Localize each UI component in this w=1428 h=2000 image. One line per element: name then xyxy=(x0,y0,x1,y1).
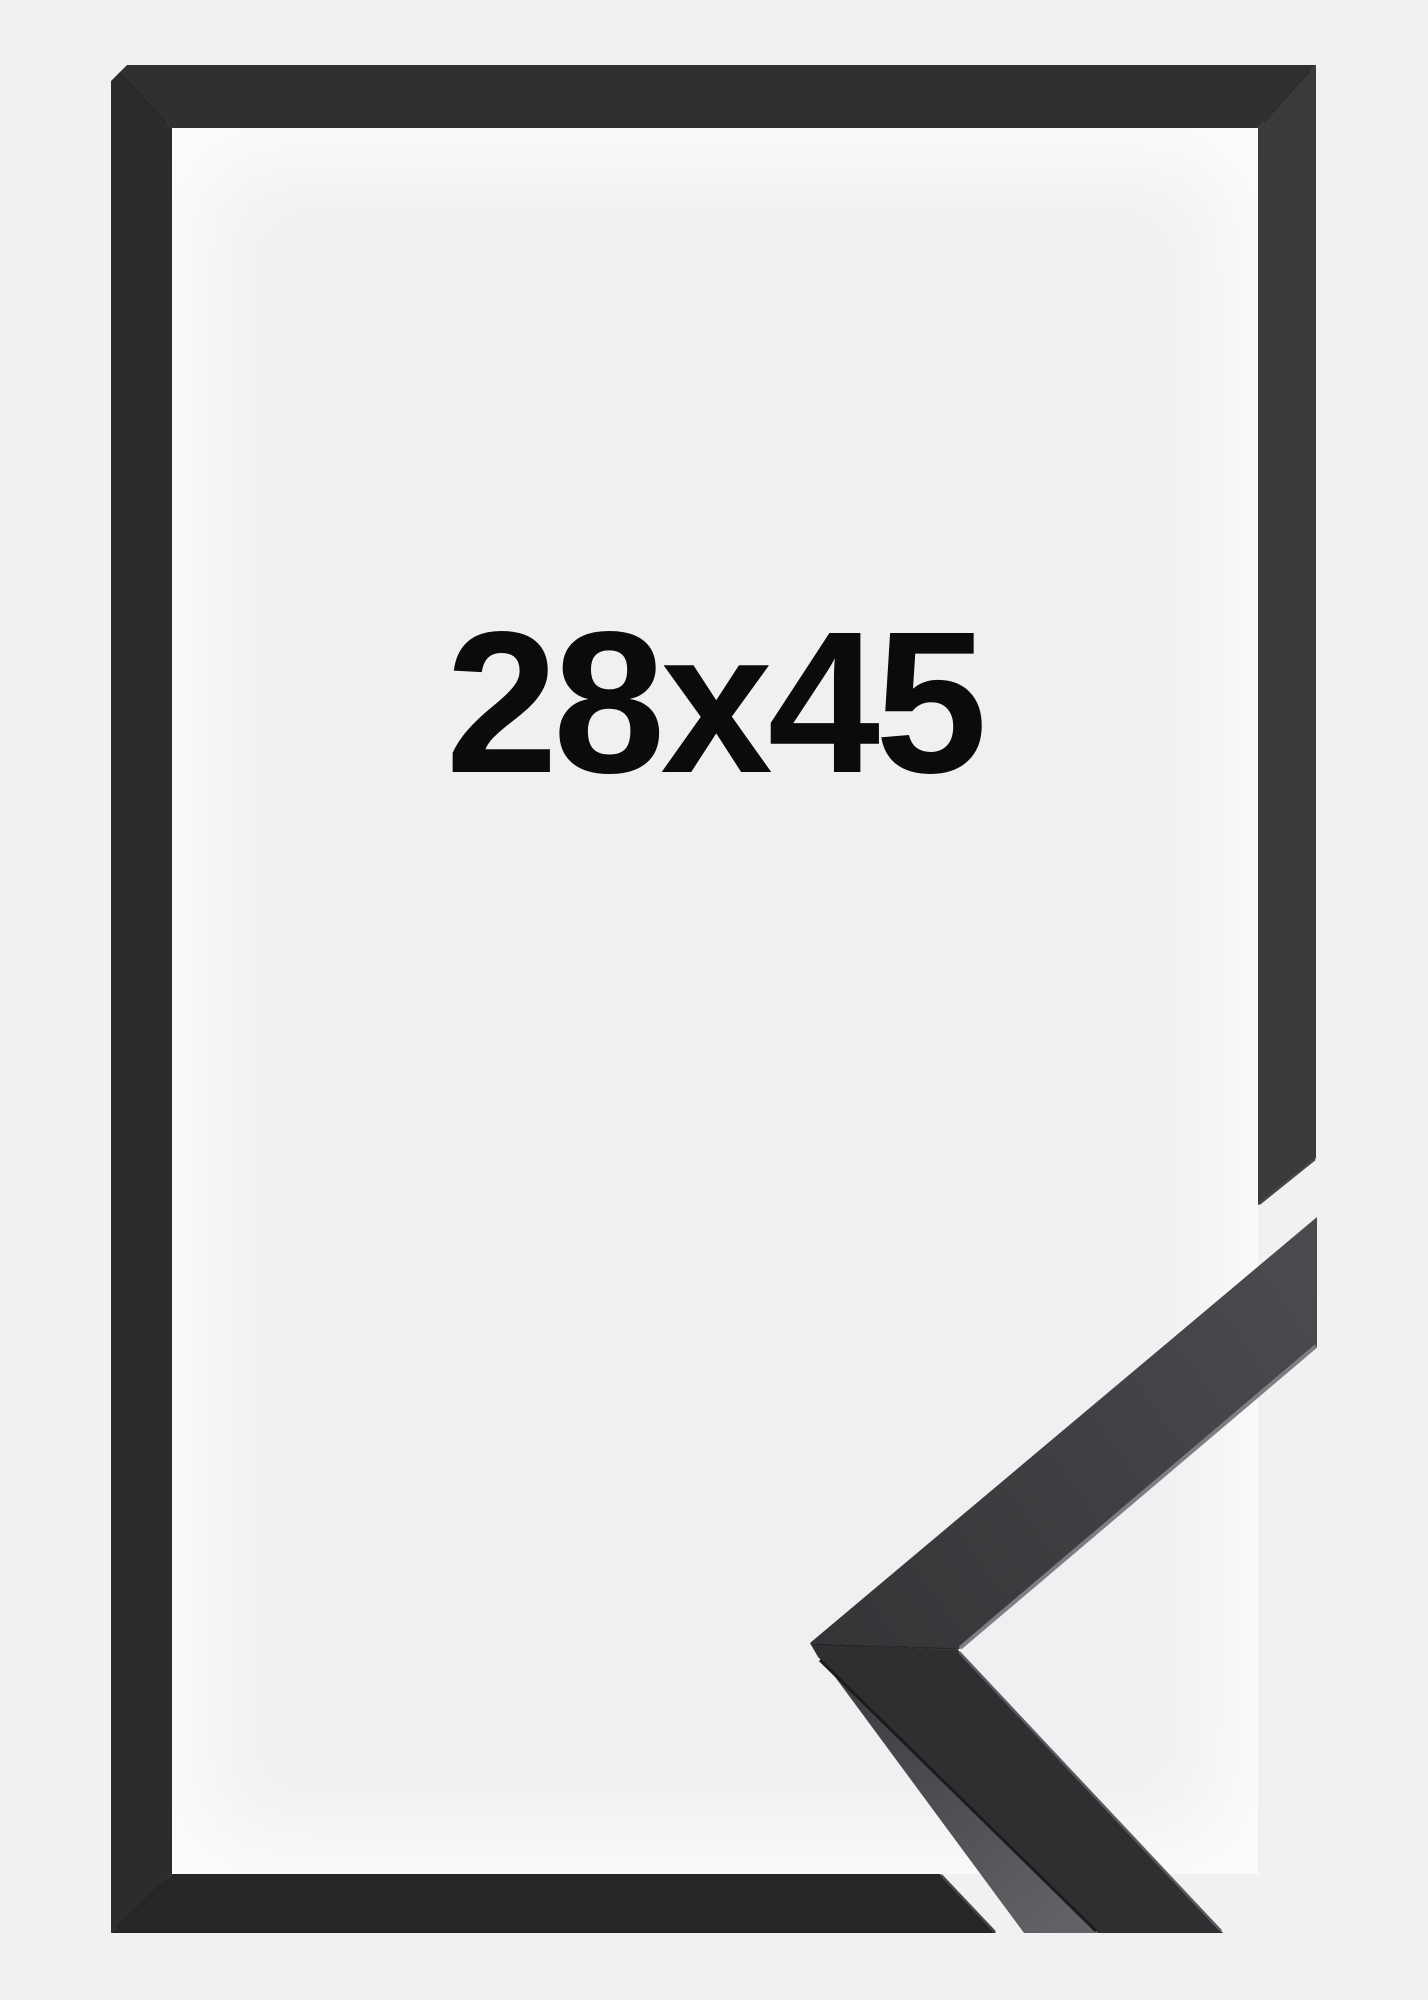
frame-graphic xyxy=(0,0,1428,2000)
corner-sample-upper-arm xyxy=(810,1217,1317,1650)
product-photo: 28x45 xyxy=(0,0,1428,2000)
size-label: 28x45 xyxy=(0,590,1428,814)
frame-border-bottom xyxy=(111,1874,996,1933)
frame-border-left xyxy=(111,65,172,1933)
frame-border-top xyxy=(111,65,1316,128)
